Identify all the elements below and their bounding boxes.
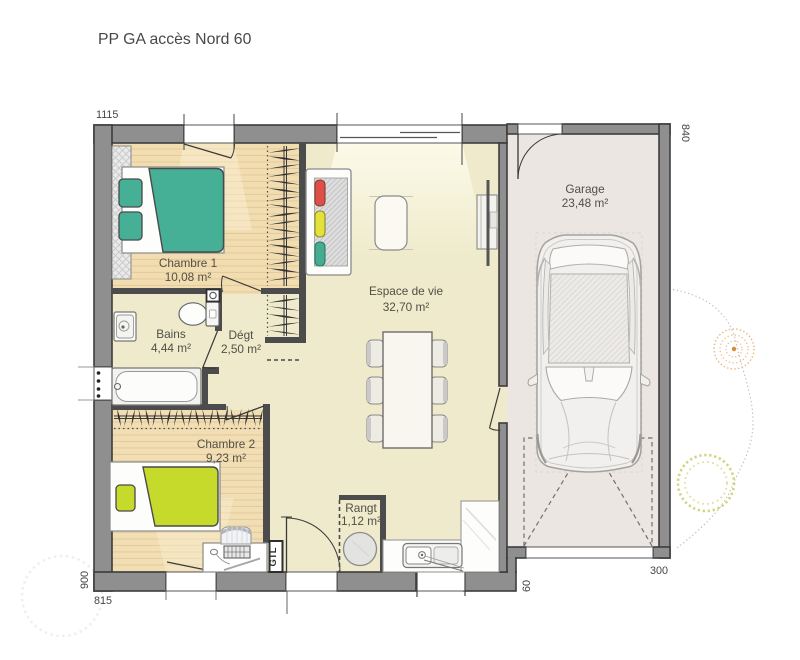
svg-text:Garage: Garage bbox=[565, 182, 605, 196]
svg-text:PP GA accès Nord 60: PP GA accès Nord 60 bbox=[98, 31, 252, 48]
svg-text:Chambre 1: Chambre 1 bbox=[159, 256, 217, 270]
svg-text:Dégt: Dégt bbox=[229, 328, 255, 342]
svg-text:Rangt: Rangt bbox=[345, 501, 377, 515]
svg-text:10,08 m²: 10,08 m² bbox=[165, 270, 212, 284]
svg-text:Bains: Bains bbox=[156, 327, 186, 341]
svg-text:Chambre 2: Chambre 2 bbox=[197, 437, 255, 451]
svg-text:60: 60 bbox=[521, 580, 533, 592]
svg-text:840: 840 bbox=[679, 124, 691, 142]
svg-text:GTL: GTL bbox=[268, 547, 279, 566]
svg-text:4,44 m²: 4,44 m² bbox=[151, 341, 191, 355]
svg-text:1115: 1115 bbox=[96, 109, 118, 121]
svg-text:815: 815 bbox=[94, 595, 112, 607]
svg-text:9,23 m²: 9,23 m² bbox=[206, 451, 246, 465]
svg-text:300: 300 bbox=[650, 565, 668, 577]
svg-text:900: 900 bbox=[79, 571, 91, 589]
svg-text:2,50 m²: 2,50 m² bbox=[221, 342, 261, 356]
svg-text:Espace de vie: Espace de vie bbox=[369, 284, 444, 298]
svg-text:1,12 m²: 1,12 m² bbox=[341, 514, 381, 528]
svg-text:32,70 m²: 32,70 m² bbox=[383, 300, 430, 314]
svg-text:23,48 m²: 23,48 m² bbox=[562, 196, 609, 210]
